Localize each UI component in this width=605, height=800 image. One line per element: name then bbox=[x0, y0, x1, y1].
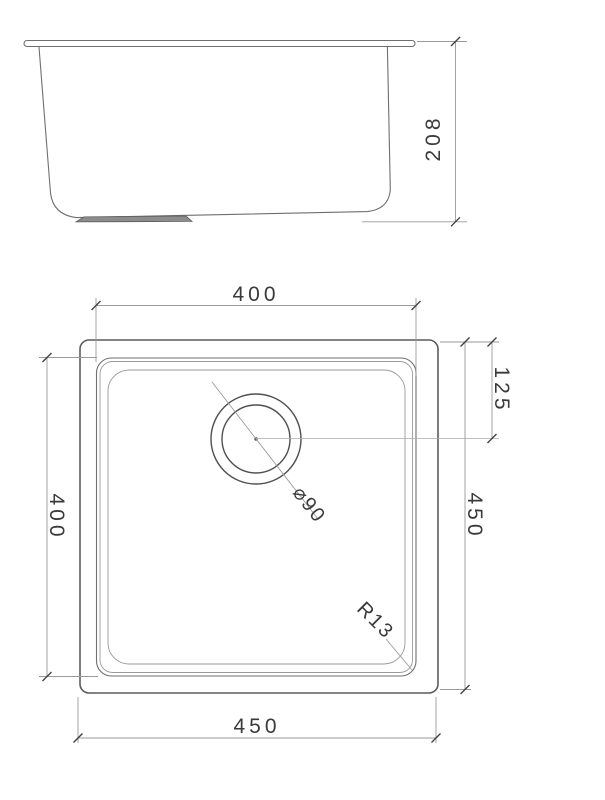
side-elevation-view: 208 bbox=[24, 37, 467, 226]
inner-width-label: 400 bbox=[232, 283, 279, 306]
inner-length-label: 400 bbox=[45, 493, 68, 540]
outer-length-label: 450 bbox=[463, 492, 486, 539]
side-bowl-outline bbox=[39, 47, 390, 218]
side-rim-bar bbox=[24, 41, 415, 47]
drain-diameter-label: ⌀90 bbox=[288, 482, 330, 527]
side-drain-pad bbox=[76, 216, 192, 222]
plan-view: ⌀90 R13 400 400 450 bbox=[39, 283, 513, 743]
outer-width-label: 450 bbox=[233, 715, 280, 738]
sink-technical-drawing: 208 ⌀90 R13 400 bbox=[0, 0, 605, 800]
corner-radius-label: R13 bbox=[352, 598, 398, 644]
depth-dimension-label: 208 bbox=[422, 114, 445, 161]
corner-radius-leader bbox=[386, 639, 412, 670]
drawing-page: 208 ⌀90 R13 400 bbox=[0, 0, 605, 800]
drain-offset-label: 125 bbox=[490, 366, 513, 413]
